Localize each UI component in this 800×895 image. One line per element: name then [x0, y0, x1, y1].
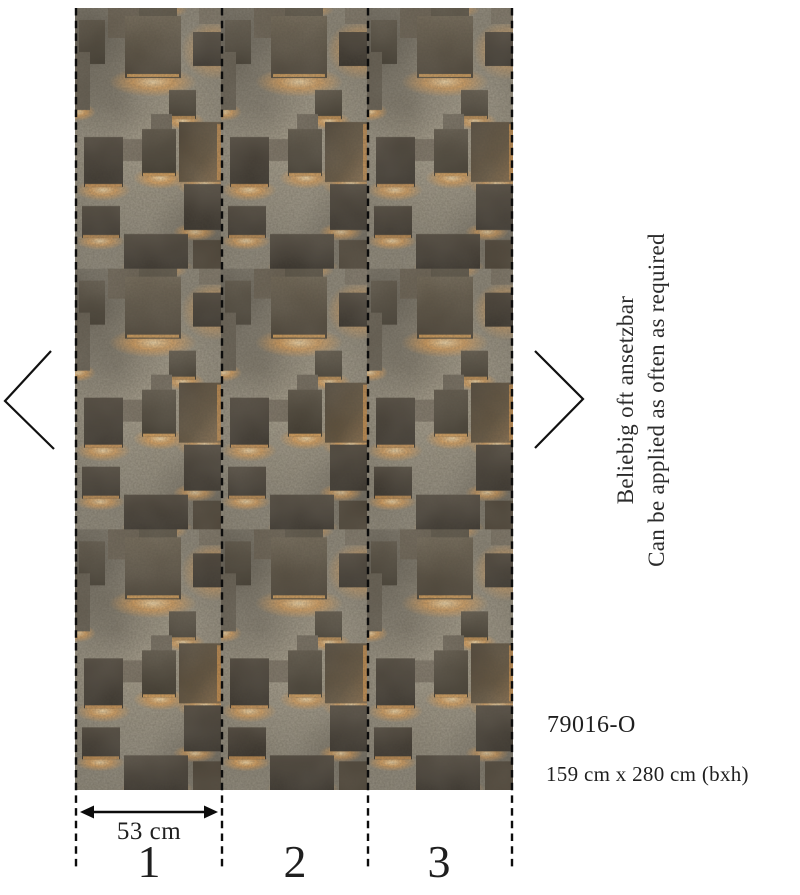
product-size: 159 cm x 280 cm (bxh): [546, 762, 749, 787]
next-arrow[interactable]: [531, 348, 589, 452]
repeat-note-german: Beliebig oft ansetzbar: [610, 215, 641, 585]
chevron-left-icon: [5, 351, 54, 449]
wallpaper-texture: [75, 8, 513, 790]
panel-number-1: 1: [76, 836, 222, 888]
chevron-right-icon: [535, 351, 583, 448]
wallpaper-image: [75, 8, 513, 790]
width-measure-arrow: [80, 806, 218, 819]
panel-number-3: 3: [366, 836, 512, 888]
prev-arrow[interactable]: [0, 348, 58, 452]
product-code: 79016-O: [547, 712, 636, 739]
panel-number-2: 2: [222, 836, 368, 888]
repeat-note: Beliebig oft ansetzbar Can be applied as…: [610, 215, 674, 585]
repeat-note-english: Can be applied as often as required: [641, 215, 672, 585]
wallpaper-spec-sheet: 53 cm 1 2 3 Beliebig oft ansetzbar Can b…: [0, 0, 800, 895]
